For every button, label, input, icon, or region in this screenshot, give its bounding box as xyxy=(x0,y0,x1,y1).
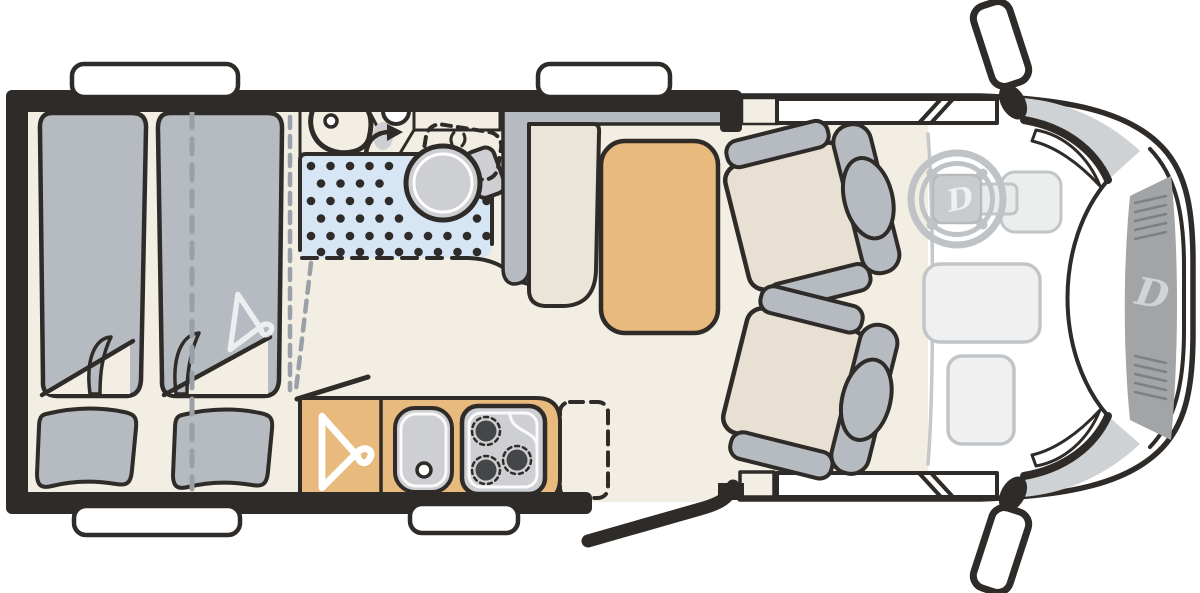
pillow-left xyxy=(37,408,136,486)
window-bed-bottom xyxy=(74,506,240,535)
toilet-bowl xyxy=(406,146,480,220)
pillow-right xyxy=(173,409,272,487)
sink-drain-icon xyxy=(417,463,431,477)
dinette-table xyxy=(601,141,718,333)
kitchen xyxy=(300,398,608,502)
dinette-bench xyxy=(529,124,599,306)
windshield-edge xyxy=(1068,180,1109,416)
doorway-floor xyxy=(592,490,722,502)
window-dinette-top xyxy=(538,64,670,97)
three-burner-hob xyxy=(462,406,545,494)
kitchen-sink xyxy=(395,408,452,492)
glovebox xyxy=(948,356,1014,444)
front-grille: D xyxy=(1125,176,1177,440)
basin-faucet-icon xyxy=(325,115,337,127)
floorplan-canvas: D D xyxy=(0,0,1200,593)
window-kitchen-bottom xyxy=(410,504,518,533)
cab-door-window-top xyxy=(742,98,997,124)
window-bed-top xyxy=(72,64,238,97)
camper-floorplan: D D xyxy=(0,0,1200,593)
